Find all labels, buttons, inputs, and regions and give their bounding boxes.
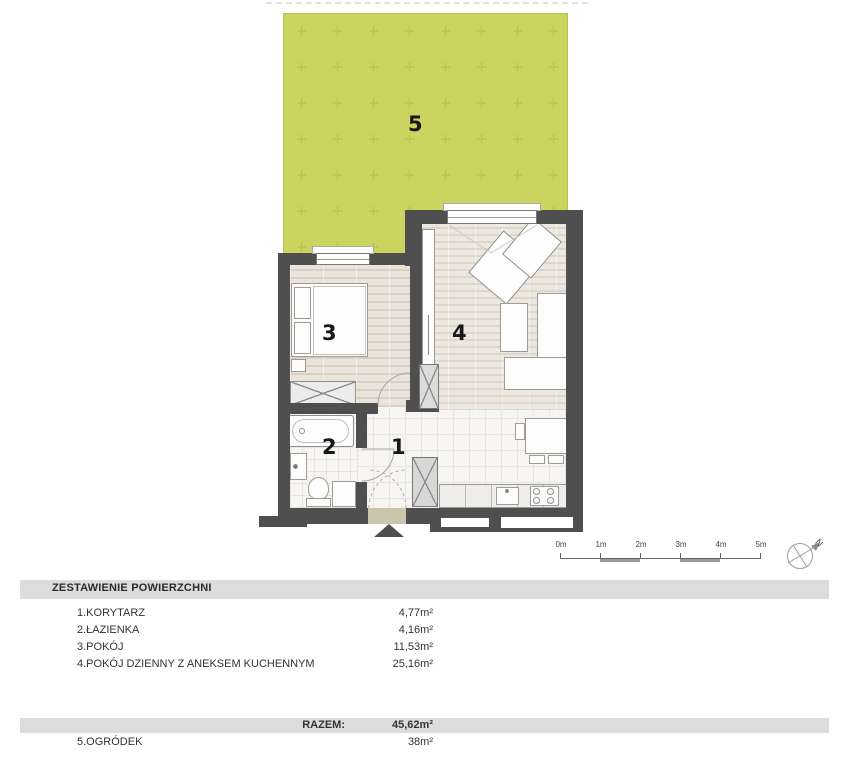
- room-label-corridor: 1: [391, 435, 406, 459]
- dining-table: [525, 418, 568, 454]
- burner-3: [533, 497, 540, 504]
- row-value: 11,53m²: [350, 641, 433, 653]
- room-label-bathroom: 2: [322, 435, 337, 459]
- scale-label-0: 0m: [552, 540, 570, 549]
- north-compass-icon: N: [783, 532, 827, 576]
- row-label: 2.ŁAZIENKA: [77, 624, 139, 636]
- row-label: 4.POKÓJ DZIENNY Z ANEKSEM KUCHENNYM: [77, 658, 315, 670]
- scale-bar: 0m 1m 2m 3m 4m 5m: [560, 540, 770, 568]
- room-label-bedroom: 3: [322, 321, 337, 345]
- total-value: 45,62m²: [350, 719, 433, 731]
- scale-label-2: 2m: [632, 540, 650, 549]
- bedside-table: [291, 359, 306, 372]
- coffee-table: [500, 303, 528, 352]
- room-label-living: 4: [452, 321, 467, 345]
- row-label: 1.KORYTARZ: [77, 607, 145, 619]
- toilet-tank: [306, 498, 331, 507]
- summary-row-bedroom: 3.POKÓJ 11,53m²: [0, 641, 849, 656]
- dining-chair-left: [515, 423, 525, 440]
- burner-1: [533, 488, 540, 495]
- tall-cabinet: [422, 229, 435, 365]
- summary-total-row: RAZEM: 45,62m²: [0, 719, 849, 734]
- burner-4: [547, 497, 554, 504]
- scale-label-4: 4m: [712, 540, 730, 549]
- lower-window-1: [440, 517, 490, 528]
- row-value: 38m²: [350, 736, 433, 748]
- row-label: 5.OGRÓDEK: [77, 736, 142, 748]
- wall-right: [566, 210, 583, 531]
- corridor-wardrobe: [412, 457, 438, 507]
- scale-segment-3-4: [680, 559, 720, 562]
- total-label: RAZEM:: [245, 719, 345, 731]
- wall-bathroom-right-lower: [356, 482, 367, 508]
- row-value: 25,16m²: [350, 658, 433, 670]
- living-window: [447, 210, 537, 224]
- scale-label-5: 5m: [752, 540, 770, 549]
- summary-row-bathroom: 2.ŁAZIENKA 4,16m²: [0, 624, 849, 639]
- bedroom-window: [316, 253, 370, 265]
- entrance-threshold: [368, 508, 406, 524]
- sink-faucet: [505, 489, 509, 493]
- bed-pillow-2: [294, 322, 311, 354]
- row-label: 3.POKÓJ: [77, 641, 123, 653]
- summary-header-bar: ZESTAWIENIE POWIERZCHNI: [20, 580, 829, 599]
- summary-row-garden: 5.OGRÓDEK 38m²: [0, 736, 849, 751]
- row-value: 4,16m²: [350, 624, 433, 636]
- floor-plan-page: 5 3 4 2 1 0m 1m 2m 3m 4m 5m N ZESTAWIENI…: [0, 0, 849, 768]
- summary-title: ZESTAWIENIE POWIERZCHNI: [52, 582, 212, 594]
- wall-bathroom-right-upper: [356, 414, 367, 448]
- scale-label-3: 3m: [672, 540, 690, 549]
- bed-pillow-1: [294, 287, 311, 319]
- wall-stub-left: [259, 516, 307, 527]
- washing-machine: [332, 481, 356, 507]
- toilet-bowl: [308, 477, 329, 500]
- dining-chair-bottom-2: [548, 455, 564, 464]
- bed-duvet: [313, 286, 366, 355]
- summary-row-corridor: 1.KORYTARZ 4,77m²: [0, 607, 849, 622]
- burner-2: [547, 488, 554, 495]
- scale-label-1: 1m: [592, 540, 610, 549]
- site-boundary-line: [266, 2, 588, 4]
- scale-segment-1-2: [600, 559, 640, 562]
- washbasin-faucet: [293, 464, 298, 469]
- summary-row-living: 4.POKÓJ DZIENNY Z ANEKSEM KUCHENNYM 25,1…: [0, 658, 849, 673]
- sofa-horizontal: [504, 357, 567, 390]
- row-value: 4,77m²: [350, 607, 433, 619]
- bathtub-drain: [299, 428, 305, 434]
- room-label-garden: 5: [408, 112, 423, 136]
- lower-window-2: [500, 516, 574, 529]
- shaft: [419, 364, 439, 409]
- dining-chair-bottom-1: [529, 455, 545, 464]
- wall-bathroom-top: [278, 403, 378, 414]
- wall-left: [278, 253, 290, 525]
- scale-baseline: [560, 558, 761, 559]
- entrance-arrow-icon: [374, 524, 404, 537]
- cabinet-handle: [428, 315, 429, 355]
